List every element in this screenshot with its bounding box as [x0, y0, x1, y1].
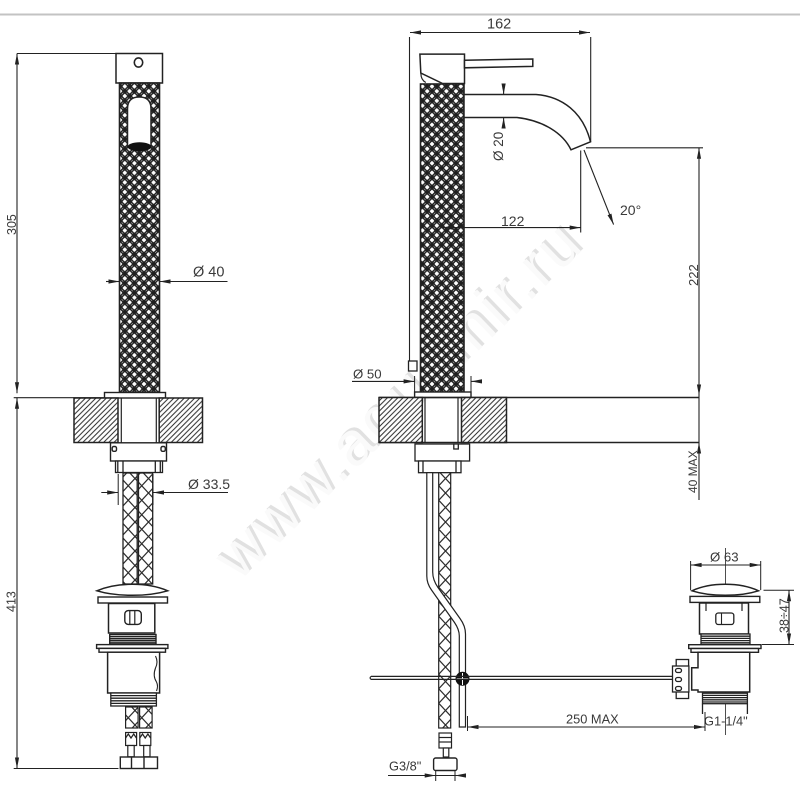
svg-text:Ø 40: Ø 40	[193, 265, 224, 281]
svg-text:38÷47: 38÷47	[778, 598, 792, 633]
svg-text:Ø 63: Ø 63	[710, 550, 739, 565]
svg-text:250 MAX: 250 MAX	[566, 712, 619, 727]
svg-text:122: 122	[501, 213, 525, 229]
svg-text:Ø 20: Ø 20	[491, 132, 506, 161]
svg-text:162: 162	[487, 17, 511, 33]
svg-text:G1-1/4": G1-1/4"	[704, 714, 748, 729]
svg-text:305: 305	[5, 214, 19, 235]
svg-text:20°: 20°	[620, 202, 641, 218]
svg-text:G3/8": G3/8"	[389, 759, 421, 774]
svg-text:Ø 33.5: Ø 33.5	[188, 476, 230, 492]
svg-text:413: 413	[5, 591, 19, 612]
svg-text:Ø 50: Ø 50	[353, 367, 382, 382]
svg-text:40 MAX: 40 MAX	[686, 450, 700, 493]
svg-text:222: 222	[686, 264, 701, 286]
